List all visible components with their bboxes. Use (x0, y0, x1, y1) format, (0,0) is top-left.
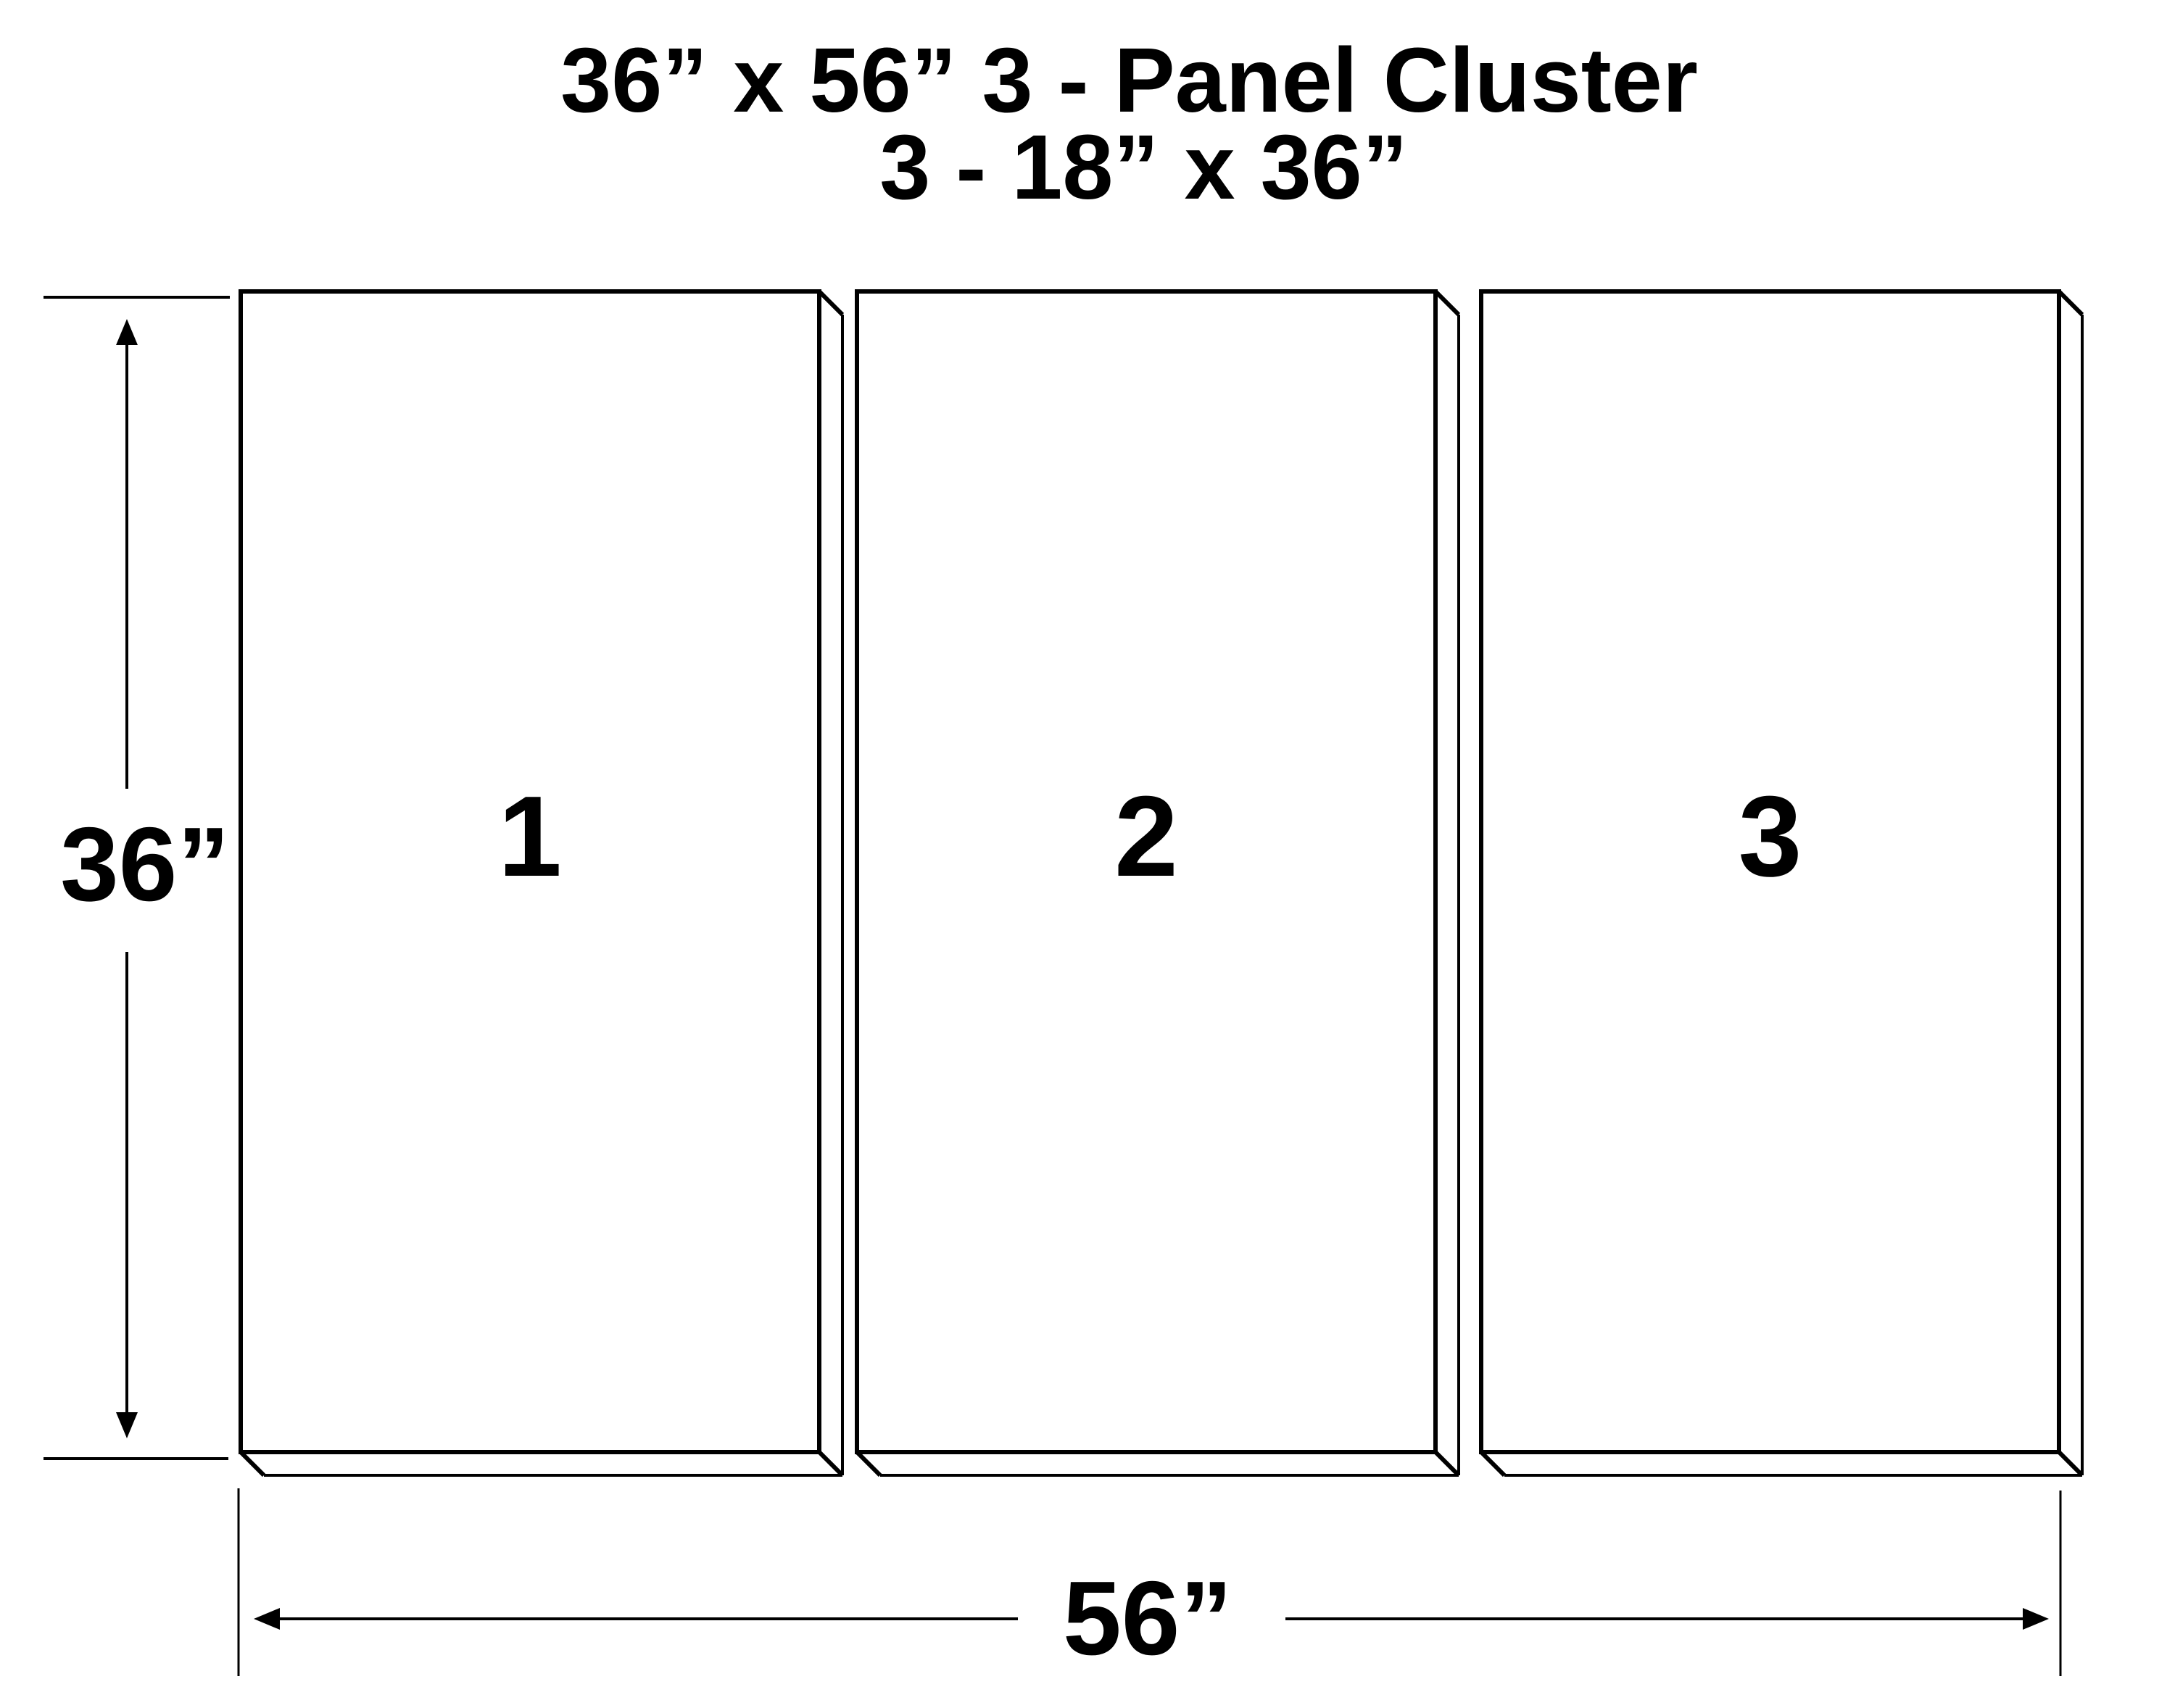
panel-3-bottom-left-bevel (1481, 1452, 1504, 1475)
panel-1-number: 1 (241, 779, 819, 894)
diagram-canvas: 36” x 56” 3 - Panel Cluster 3 - 18” x 36… (0, 0, 2175, 1708)
panel-1-bottom-right-bevel (819, 1452, 842, 1475)
panel-1-top-right-bevel (819, 291, 842, 315)
panel-3-bottom-right-bevel (2059, 1452, 2082, 1475)
title-line-2: 3 - 18” x 36” (112, 122, 2175, 213)
title-line-1: 36” x 56” 3 - Panel Cluster (83, 35, 2175, 126)
width-arrowhead-left (254, 1608, 280, 1630)
panel-3-top-right-bevel (2059, 291, 2082, 315)
width-arrowhead-right (2023, 1608, 2049, 1630)
height-arrowhead-up (116, 319, 138, 345)
panel-2-bottom-right-bevel (1435, 1452, 1459, 1475)
height-dimension-label: 36” (14, 812, 275, 917)
panel-3-number: 3 (1481, 779, 2059, 894)
height-arrowhead-down (116, 1412, 138, 1438)
panel-2-top-right-bevel (1435, 291, 1459, 315)
panel-2-number: 2 (857, 779, 1435, 894)
panel-2-bottom-left-bevel (857, 1452, 880, 1475)
width-dimension-label: 56” (1024, 1566, 1271, 1671)
panel-1-bottom-left-bevel (241, 1452, 264, 1475)
